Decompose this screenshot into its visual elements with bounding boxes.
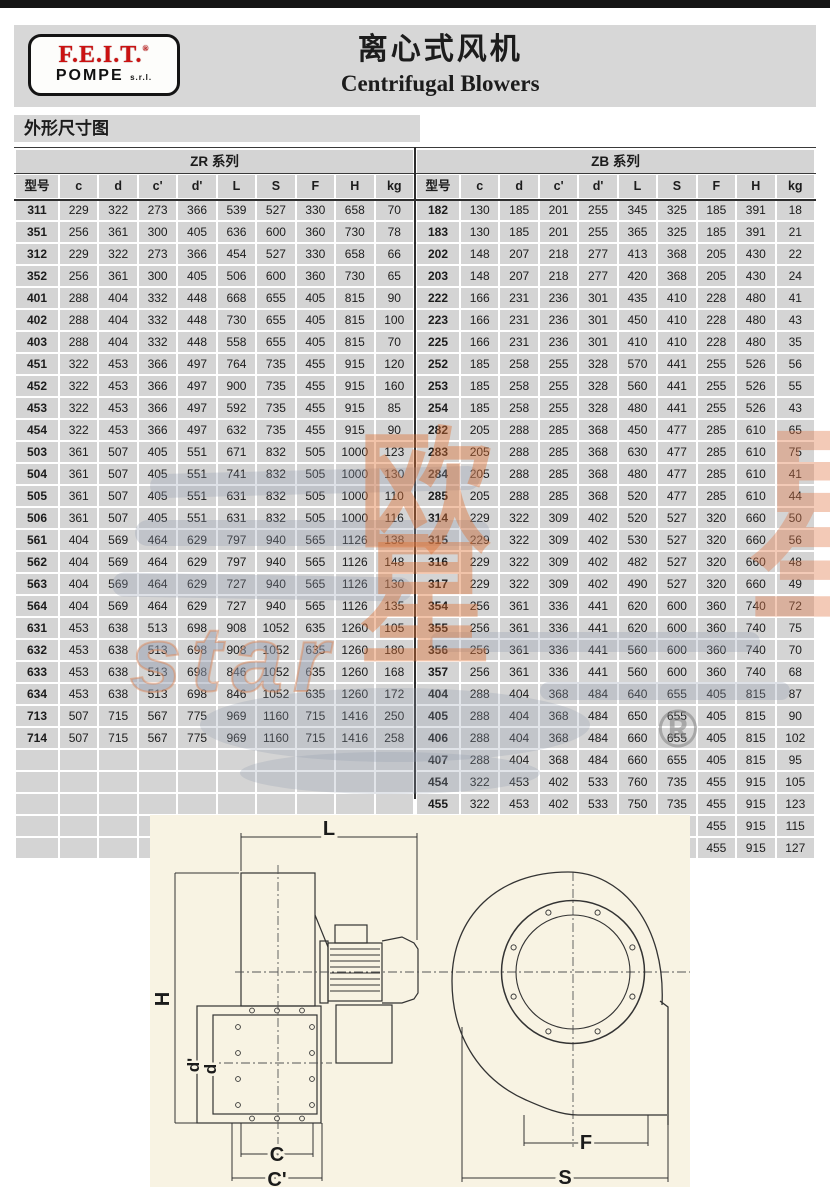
value-cell: 366 xyxy=(177,199,216,221)
model-cell: 202 xyxy=(416,243,460,265)
value-cell: 361 xyxy=(499,617,538,639)
value-cell: 301 xyxy=(578,331,617,353)
col-header-F: F xyxy=(697,174,736,199)
value-cell: 600 xyxy=(657,595,696,617)
value-cell: 480 xyxy=(736,331,775,353)
value-cell: 453 xyxy=(98,397,137,419)
value-cell xyxy=(98,771,137,793)
value-cell: 915 xyxy=(335,419,374,441)
model-cell: 452 xyxy=(15,375,59,397)
table-row: 63145363851369890810526351260105 xyxy=(15,617,414,639)
value-cell: 480 xyxy=(736,287,775,309)
value-cell: 100 xyxy=(375,309,415,331)
value-cell: 448 xyxy=(177,309,216,331)
value-cell: 366 xyxy=(138,397,177,419)
value-cell: 658 xyxy=(335,243,374,265)
value-cell: 477 xyxy=(657,419,696,441)
table-row: 25218525825532857044125552656 xyxy=(416,353,815,375)
value-cell: 285 xyxy=(697,419,736,441)
table-row: 63245363851369890810526351260180 xyxy=(15,639,414,661)
value-cell: 484 xyxy=(578,683,617,705)
logo-brand: F.E.I.T. xyxy=(58,42,142,68)
value-cell: 90 xyxy=(776,705,816,727)
value-cell: 832 xyxy=(256,485,295,507)
value-cell: 600 xyxy=(256,221,295,243)
table-row: 31522932230940253052732066056 xyxy=(416,529,815,551)
value-cell: 815 xyxy=(736,683,775,705)
value-cell: 735 xyxy=(256,397,295,419)
value-cell: 455 xyxy=(296,397,335,419)
value-cell: 450 xyxy=(618,309,657,331)
value-cell: 105 xyxy=(375,617,415,639)
value-cell xyxy=(59,771,98,793)
value-cell: 405 xyxy=(177,221,216,243)
value-cell: 484 xyxy=(578,705,617,727)
value-cell: 201 xyxy=(539,221,578,243)
value-cell: 635 xyxy=(296,617,335,639)
value-cell: 68 xyxy=(776,661,816,683)
value-cell: 115 xyxy=(776,815,816,837)
value-cell: 285 xyxy=(697,485,736,507)
model-cell: 183 xyxy=(416,221,460,243)
table-row: 454322453402533760735455915105 xyxy=(416,771,815,793)
page-title-chinese: 离心式风机 xyxy=(230,31,650,69)
value-cell: 404 xyxy=(98,331,137,353)
col-header-kg: kg xyxy=(375,174,415,199)
value-cell: 455 xyxy=(296,419,335,441)
value-cell: 322 xyxy=(98,243,137,265)
value-cell: 255 xyxy=(539,353,578,375)
value-cell: 1126 xyxy=(335,595,374,617)
value-cell: 360 xyxy=(697,617,736,639)
value-cell: 236 xyxy=(539,309,578,331)
value-cell: 405 xyxy=(697,683,736,705)
value-cell: 361 xyxy=(59,463,98,485)
value-cell: 70 xyxy=(776,639,816,661)
model-cell: 505 xyxy=(15,485,59,507)
value-cell: 600 xyxy=(657,639,696,661)
value-cell: 497 xyxy=(177,397,216,419)
value-cell: 420 xyxy=(618,265,657,287)
value-cell: 402 xyxy=(578,551,617,573)
model-cell: 354 xyxy=(416,595,460,617)
value-cell: 569 xyxy=(98,573,137,595)
table-row: 40328840433244855865540581570 xyxy=(15,331,414,353)
value-cell xyxy=(375,749,415,771)
value-cell: 365 xyxy=(618,221,657,243)
value-cell: 480 xyxy=(618,397,657,419)
model-cell: 506 xyxy=(15,507,59,529)
model-cell: 315 xyxy=(416,529,460,551)
value-cell: 526 xyxy=(736,397,775,419)
value-cell: 740 xyxy=(736,617,775,639)
value-cell: 368 xyxy=(539,749,578,771)
value-cell: 273 xyxy=(138,243,177,265)
value-cell: 75 xyxy=(776,617,816,639)
value-cell: 322 xyxy=(499,529,538,551)
value-cell: 402 xyxy=(578,529,617,551)
value-cell: 567 xyxy=(138,727,177,749)
value-cell: 130 xyxy=(460,221,499,243)
value-cell: 560 xyxy=(618,639,657,661)
value-cell: 285 xyxy=(697,463,736,485)
col-header-d: d xyxy=(499,174,538,199)
model-cell: 405 xyxy=(416,705,460,727)
value-cell: 527 xyxy=(657,551,696,573)
model-cell: 633 xyxy=(15,661,59,683)
value-cell: 520 xyxy=(618,485,657,507)
value-cell: 453 xyxy=(98,375,137,397)
value-cell: 413 xyxy=(618,243,657,265)
value-cell: 631 xyxy=(217,507,256,529)
value-cell: 325 xyxy=(657,199,696,221)
table-row: 35425636133644162060036074072 xyxy=(416,595,815,617)
column-header-row: 型号 c d c' d' L S F H kg xyxy=(416,174,815,199)
model-cell: 317 xyxy=(416,573,460,595)
table-row: 20314820721827742036820543024 xyxy=(416,265,815,287)
value-cell: 309 xyxy=(539,507,578,529)
value-cell: 205 xyxy=(460,485,499,507)
value-cell: 405 xyxy=(296,331,335,353)
value-cell: 497 xyxy=(177,375,216,397)
value-cell: 231 xyxy=(499,331,538,353)
model-cell: 403 xyxy=(15,331,59,353)
model-cell: 563 xyxy=(15,573,59,595)
value-cell: 539 xyxy=(217,199,256,221)
model-cell xyxy=(15,815,59,837)
value-cell: 404 xyxy=(59,529,98,551)
value-cell: 969 xyxy=(217,705,256,727)
table-row: 402288404332448730655405815100 xyxy=(15,309,414,331)
value-cell: 288 xyxy=(499,485,538,507)
col-header-L: L xyxy=(217,174,256,199)
value-cell: 655 xyxy=(657,749,696,771)
value-cell: 332 xyxy=(138,309,177,331)
value-cell: 900 xyxy=(217,375,256,397)
value-cell: 915 xyxy=(736,815,775,837)
value-cell: 797 xyxy=(217,551,256,573)
value-cell xyxy=(98,815,137,837)
value-cell: 360 xyxy=(697,661,736,683)
value-cell: 558 xyxy=(217,331,256,353)
value-cell: 185 xyxy=(697,199,736,221)
table-row: 28520528828536852047728561044 xyxy=(416,485,815,507)
value-cell: 764 xyxy=(217,353,256,375)
value-cell: 85 xyxy=(375,397,415,419)
value-cell: 1160 xyxy=(256,727,295,749)
model-cell: 314 xyxy=(416,507,460,529)
value-cell: 361 xyxy=(499,639,538,661)
value-cell xyxy=(59,793,98,815)
value-cell: 631 xyxy=(217,485,256,507)
value-cell: 1260 xyxy=(335,661,374,683)
value-cell: 940 xyxy=(256,529,295,551)
table-row: 63445363851369884610526351260172 xyxy=(15,683,414,705)
value-cell: 569 xyxy=(98,529,137,551)
table-row: 35225636130040550660036073065 xyxy=(15,265,414,287)
value-cell: 453 xyxy=(98,353,137,375)
table-row: 63345363851369884610526351260168 xyxy=(15,661,414,683)
value-cell: 205 xyxy=(697,243,736,265)
value-cell: 735 xyxy=(256,353,295,375)
table-row: 22316623123630145041022848043 xyxy=(416,309,815,331)
value-cell: 258 xyxy=(499,375,538,397)
model-cell xyxy=(15,771,59,793)
value-cell: 288 xyxy=(499,419,538,441)
value-cell: 727 xyxy=(217,573,256,595)
value-cell: 65 xyxy=(375,265,415,287)
value-cell: 273 xyxy=(138,199,177,221)
value-cell: 90 xyxy=(375,419,415,441)
value-cell xyxy=(98,749,137,771)
value-cell: 21 xyxy=(776,221,816,243)
series-title-zr: ZR 系列 xyxy=(15,149,414,174)
value-cell: 255 xyxy=(578,199,617,221)
value-cell: 660 xyxy=(736,551,775,573)
value-cell: 660 xyxy=(618,727,657,749)
value-cell: 391 xyxy=(736,221,775,243)
model-cell: 285 xyxy=(416,485,460,507)
value-cell: 570 xyxy=(618,353,657,375)
value-cell: 41 xyxy=(776,287,816,309)
value-cell: 527 xyxy=(657,573,696,595)
value-cell: 730 xyxy=(335,265,374,287)
value-cell: 361 xyxy=(59,485,98,507)
col-header-c: c xyxy=(59,174,98,199)
model-cell: 714 xyxy=(15,727,59,749)
value-cell: 453 xyxy=(59,617,98,639)
value-cell: 285 xyxy=(539,463,578,485)
value-cell: 160 xyxy=(375,375,415,397)
value-cell: 527 xyxy=(657,529,696,551)
value-cell: 655 xyxy=(657,705,696,727)
value-cell: 1000 xyxy=(335,441,374,463)
value-cell: 671 xyxy=(217,441,256,463)
table-row: 31122932227336653952733065870 xyxy=(15,199,414,221)
value-cell: 405 xyxy=(138,485,177,507)
value-cell: 815 xyxy=(736,727,775,749)
value-cell: 185 xyxy=(460,375,499,397)
value-cell: 95 xyxy=(776,749,816,771)
value-cell: 908 xyxy=(217,639,256,661)
logo-sub-text: POMPE s.r.l. xyxy=(56,67,152,87)
logo-brand-text: F.E.I.T.® xyxy=(58,43,149,67)
value-cell: 56 xyxy=(776,353,816,375)
value-cell: 231 xyxy=(499,309,538,331)
value-cell: 455 xyxy=(296,375,335,397)
model-cell: 713 xyxy=(15,705,59,727)
col-header-S: S xyxy=(657,174,696,199)
value-cell: 655 xyxy=(657,727,696,749)
value-cell: 404 xyxy=(499,749,538,771)
value-cell: 360 xyxy=(697,639,736,661)
blower-drawing-svg: L H d' d C C' F S xyxy=(150,815,690,1187)
col-header-c: c xyxy=(460,174,499,199)
value-cell: 527 xyxy=(657,507,696,529)
value-cell: 255 xyxy=(697,353,736,375)
value-cell: 288 xyxy=(460,683,499,705)
value-cell: 1000 xyxy=(335,485,374,507)
value-cell: 505 xyxy=(296,507,335,529)
value-cell xyxy=(98,793,137,815)
value-cell: 655 xyxy=(256,287,295,309)
table-row: 22216623123630143541022848041 xyxy=(416,287,815,309)
value-cell: 453 xyxy=(98,419,137,441)
value-cell: 410 xyxy=(657,331,696,353)
value-cell: 1000 xyxy=(335,463,374,485)
value-cell: 277 xyxy=(578,243,617,265)
table-row xyxy=(15,749,414,771)
value-cell: 480 xyxy=(618,463,657,485)
value-cell: 368 xyxy=(578,463,617,485)
value-cell: 285 xyxy=(539,441,578,463)
table-row: 5033615074055516718325051000123 xyxy=(15,441,414,463)
table-row: 28220528828536845047728561065 xyxy=(416,419,815,441)
model-cell: 407 xyxy=(416,749,460,771)
value-cell: 507 xyxy=(59,727,98,749)
value-cell: 300 xyxy=(138,221,177,243)
value-cell: 185 xyxy=(499,199,538,221)
value-cell: 256 xyxy=(460,639,499,661)
value-cell: 135 xyxy=(375,595,415,617)
value-cell: 205 xyxy=(460,419,499,441)
value-cell xyxy=(138,771,177,793)
value-cell: 330 xyxy=(296,199,335,221)
value-cell: 1052 xyxy=(256,661,295,683)
logo-pompe: POMPE xyxy=(56,67,124,84)
value-cell: 815 xyxy=(335,309,374,331)
value-cell: 336 xyxy=(539,639,578,661)
value-cell: 1126 xyxy=(335,573,374,595)
value-cell: 130 xyxy=(375,463,415,485)
value-cell: 629 xyxy=(177,573,216,595)
table-row: 5614045694646297979405651126138 xyxy=(15,529,414,551)
value-cell xyxy=(256,749,295,771)
value-cell: 205 xyxy=(697,265,736,287)
value-cell: 166 xyxy=(460,309,499,331)
value-cell: 698 xyxy=(177,661,216,683)
value-cell: 309 xyxy=(539,573,578,595)
table-row: 40528840436848465065540581590 xyxy=(416,705,815,727)
value-cell: 565 xyxy=(296,529,335,551)
value-cell: 366 xyxy=(138,375,177,397)
value-cell: 43 xyxy=(776,397,816,419)
table-row: 22516623123630141041022848035 xyxy=(416,331,815,353)
value-cell: 1126 xyxy=(335,529,374,551)
value-cell: 405 xyxy=(138,441,177,463)
table-row: 5053615074055516318325051000110 xyxy=(15,485,414,507)
value-cell: 368 xyxy=(657,243,696,265)
value-cell: 1126 xyxy=(335,551,374,573)
table-row: 5063615074055516318325051000116 xyxy=(15,507,414,529)
value-cell: 361 xyxy=(59,507,98,529)
model-cell: 404 xyxy=(416,683,460,705)
value-cell: 750 xyxy=(618,793,657,815)
value-cell: 65 xyxy=(776,419,816,441)
value-cell xyxy=(217,793,256,815)
model-cell: 284 xyxy=(416,463,460,485)
value-cell: 477 xyxy=(657,485,696,507)
value-cell: 715 xyxy=(296,705,335,727)
value-cell: 405 xyxy=(296,287,335,309)
value-cell: 328 xyxy=(578,397,617,419)
value-cell: 258 xyxy=(375,727,415,749)
value-cell: 404 xyxy=(59,595,98,617)
model-cell: 564 xyxy=(15,595,59,617)
value-cell: 551 xyxy=(177,485,216,507)
value-cell: 638 xyxy=(98,683,137,705)
value-cell xyxy=(256,771,295,793)
table-row: 5644045694646297279405651126135 xyxy=(15,595,414,617)
model-cell: 282 xyxy=(416,419,460,441)
value-cell: 256 xyxy=(460,661,499,683)
table-row: 28320528828536863047728561075 xyxy=(416,441,815,463)
value-cell: 361 xyxy=(98,221,137,243)
value-cell: 185 xyxy=(460,397,499,419)
value-cell: 620 xyxy=(618,595,657,617)
value-cell: 185 xyxy=(697,221,736,243)
dim-label-L: L xyxy=(323,818,335,840)
value-cell: 405 xyxy=(697,727,736,749)
value-cell: 102 xyxy=(776,727,816,749)
value-cell: 322 xyxy=(98,199,137,221)
value-cell: 309 xyxy=(539,551,578,573)
value-cell: 322 xyxy=(499,507,538,529)
value-cell: 740 xyxy=(736,661,775,683)
value-cell: 360 xyxy=(296,221,335,243)
value-cell: 368 xyxy=(578,441,617,463)
value-cell: 22 xyxy=(776,243,816,265)
value-cell: 480 xyxy=(736,309,775,331)
value-cell: 288 xyxy=(59,331,98,353)
column-header-row: 型号 c d c' d' L S F H kg xyxy=(15,174,414,199)
model-cell xyxy=(15,793,59,815)
value-cell: 322 xyxy=(59,397,98,419)
value-cell: 448 xyxy=(177,331,216,353)
value-cell: 166 xyxy=(460,287,499,309)
col-header-model: 型号 xyxy=(416,174,460,199)
value-cell xyxy=(177,793,216,815)
value-cell: 908 xyxy=(217,617,256,639)
value-cell: 404 xyxy=(59,551,98,573)
value-cell: 477 xyxy=(657,441,696,463)
value-cell: 138 xyxy=(375,529,415,551)
value-cell: 775 xyxy=(177,705,216,727)
value-cell xyxy=(177,749,216,771)
value-cell: 229 xyxy=(460,507,499,529)
value-cell: 640 xyxy=(618,683,657,705)
value-cell: 530 xyxy=(618,529,657,551)
col-header-d-prime: d' xyxy=(177,174,216,199)
value-cell: 43 xyxy=(776,309,816,331)
value-cell: 332 xyxy=(138,287,177,309)
value-cell xyxy=(59,837,98,859)
value-cell: 255 xyxy=(697,375,736,397)
value-cell: 288 xyxy=(460,727,499,749)
value-cell: 402 xyxy=(578,573,617,595)
value-cell: 402 xyxy=(539,771,578,793)
value-cell: 441 xyxy=(657,375,696,397)
value-cell: 366 xyxy=(177,243,216,265)
value-cell: 366 xyxy=(138,353,177,375)
value-cell: 229 xyxy=(59,243,98,265)
value-cell: 228 xyxy=(697,309,736,331)
value-cell: 205 xyxy=(460,463,499,485)
page-titles: 离心式风机 Centrifugal Blowers xyxy=(230,31,650,99)
table-divider xyxy=(414,147,416,799)
value-cell: 301 xyxy=(578,287,617,309)
value-cell: 410 xyxy=(618,331,657,353)
